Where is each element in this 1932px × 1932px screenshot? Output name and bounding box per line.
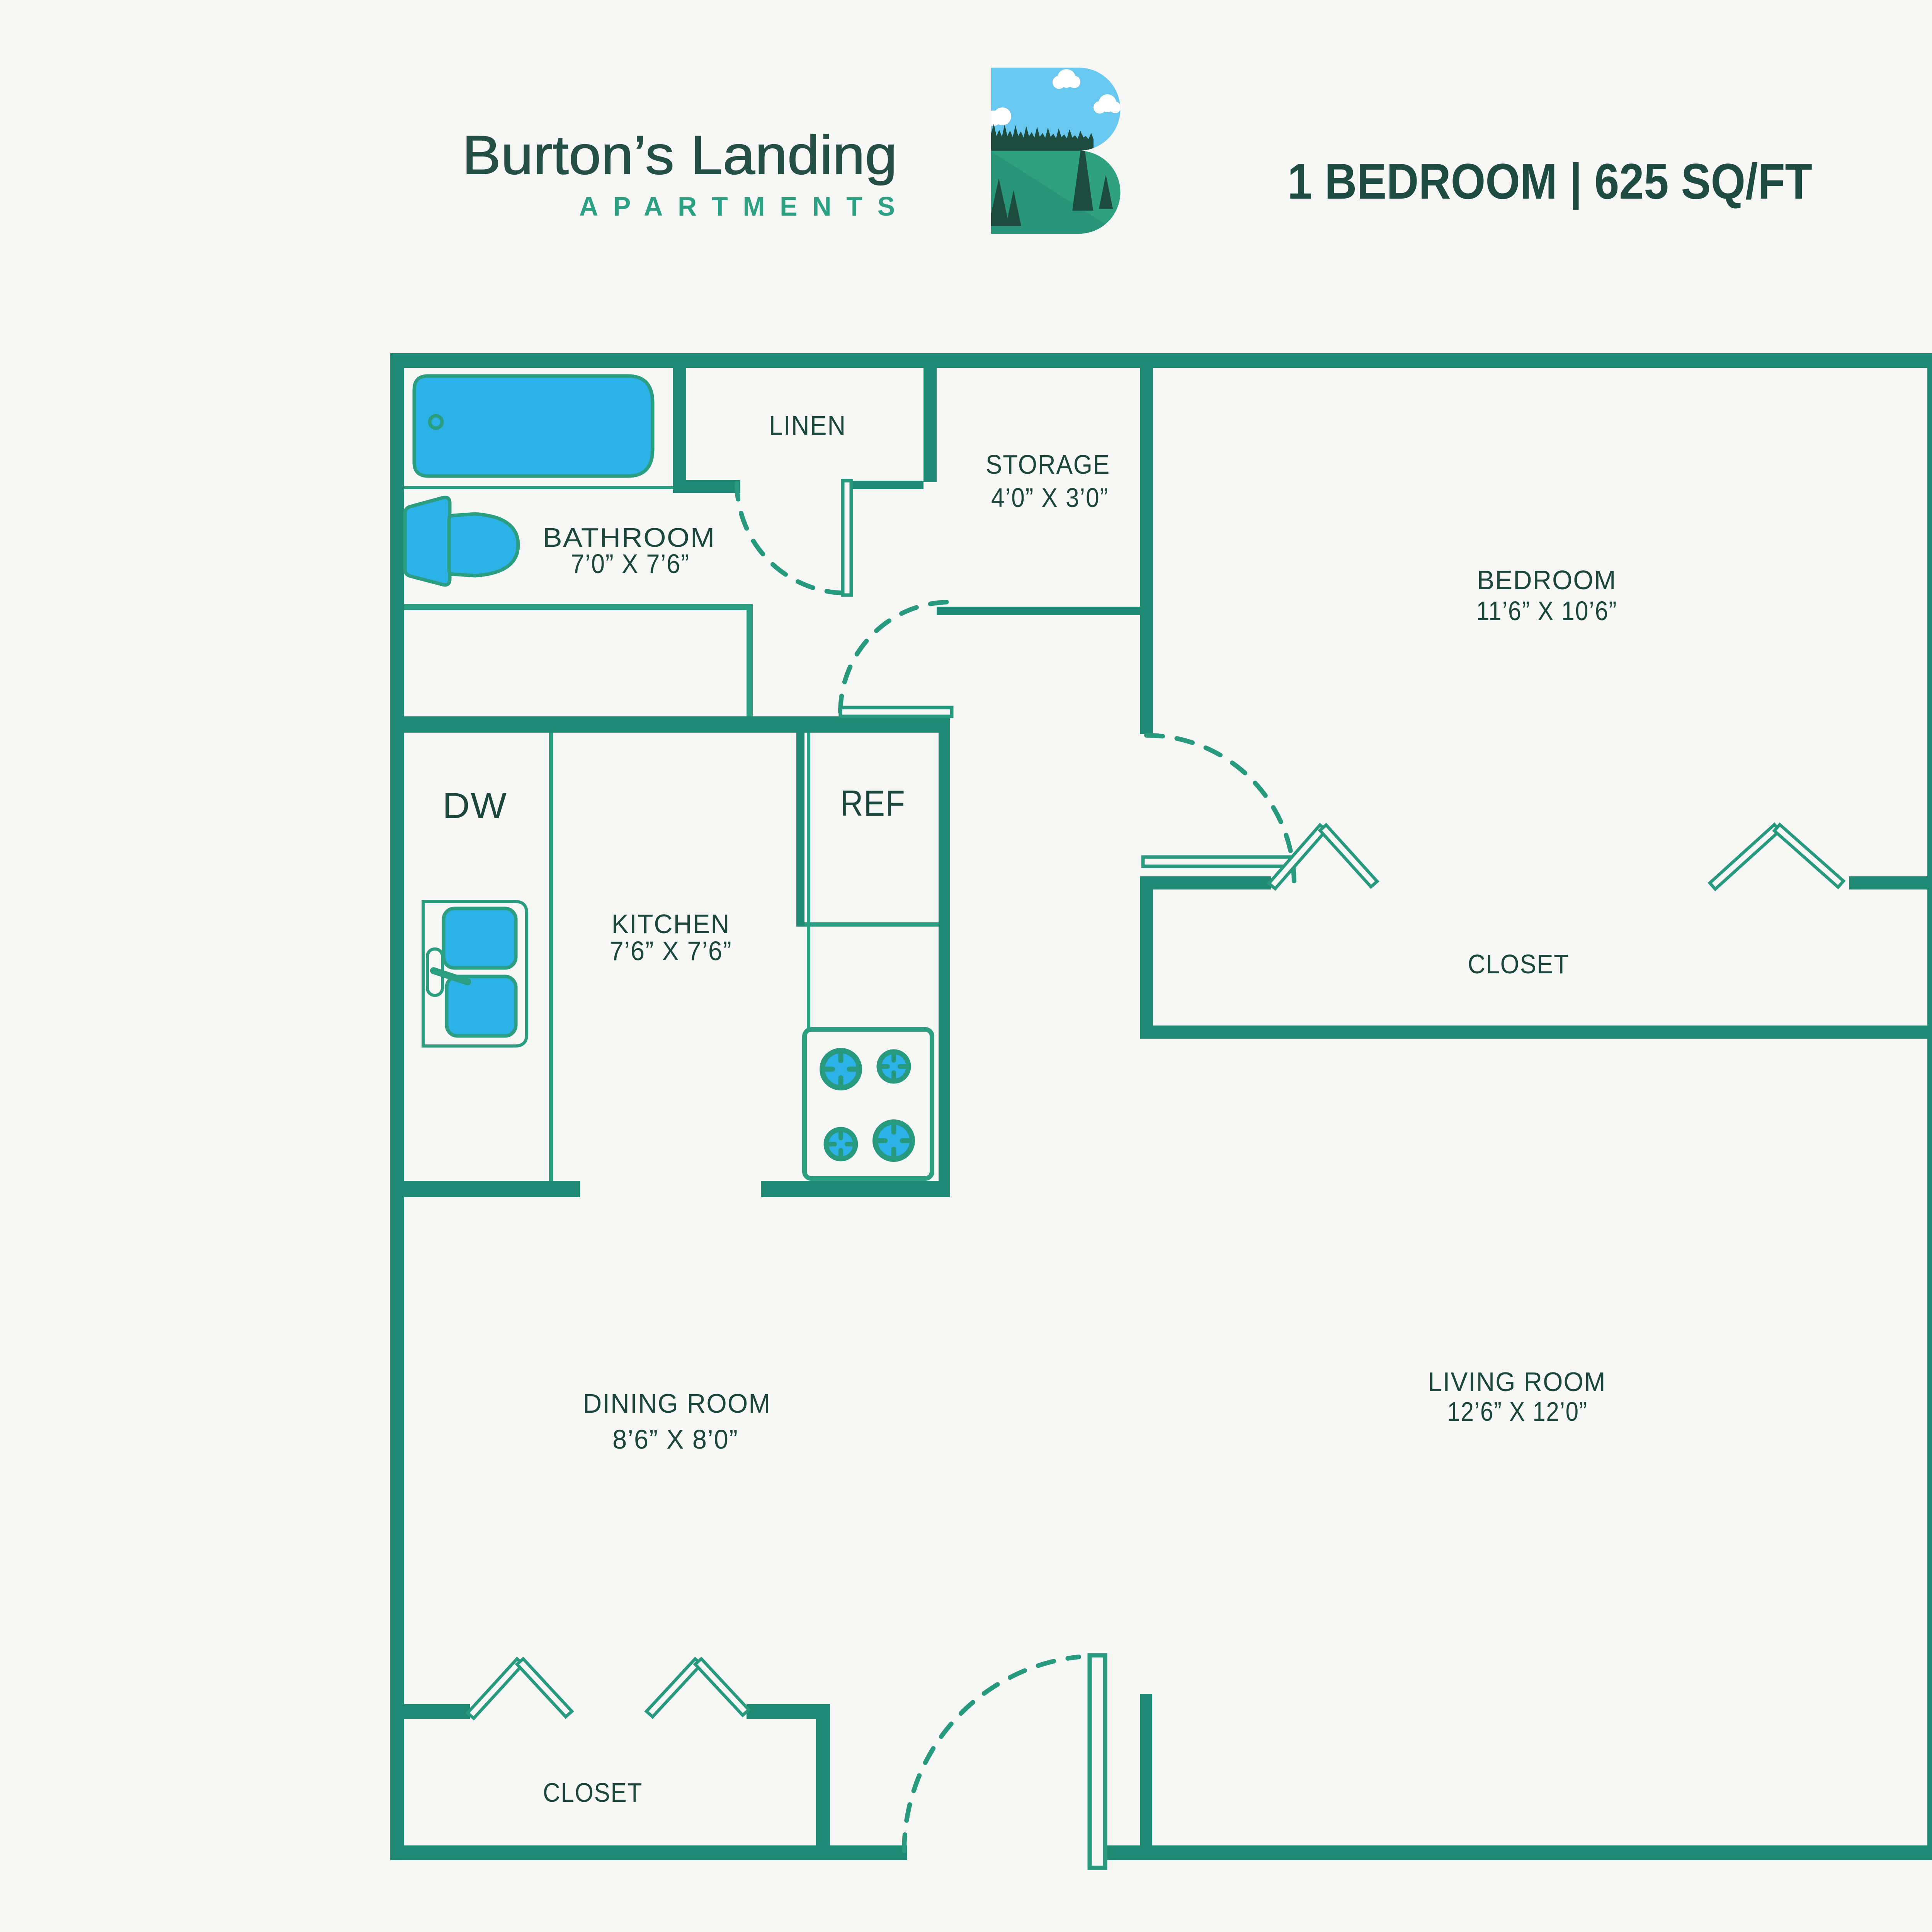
svg-text:Burton’s Landing: Burton’s Landing bbox=[462, 124, 897, 186]
svg-text:REF: REF bbox=[840, 783, 906, 823]
svg-text:DW: DW bbox=[442, 785, 507, 826]
svg-text:7’6” X 7’6”: 7’6” X 7’6” bbox=[610, 936, 732, 966]
svg-text:8’6” X 8’0”: 8’6” X 8’0” bbox=[612, 1424, 738, 1454]
svg-text:APARTMENTS: APARTMENTS bbox=[579, 191, 910, 221]
svg-text:1 BEDROOM | 625 SQ/FT: 1 BEDROOM | 625 SQ/FT bbox=[1287, 153, 1812, 210]
svg-text:11’6” X 10’6”: 11’6” X 10’6” bbox=[1476, 596, 1617, 626]
svg-text:KITCHEN: KITCHEN bbox=[612, 909, 730, 939]
svg-text:LIVING ROOM: LIVING ROOM bbox=[1428, 1367, 1606, 1397]
svg-text:CLOSET: CLOSET bbox=[1468, 949, 1570, 979]
svg-text:4’0” X 3’0”: 4’0” X 3’0” bbox=[991, 483, 1109, 513]
svg-text:BEDROOM: BEDROOM bbox=[1477, 565, 1617, 595]
svg-text:12’6” X 12’0”: 12’6” X 12’0” bbox=[1447, 1396, 1588, 1427]
svg-text:LINEN: LINEN bbox=[769, 410, 846, 440]
svg-text:STORAGE: STORAGE bbox=[986, 449, 1110, 480]
svg-text:DINING ROOM: DINING ROOM bbox=[583, 1388, 771, 1418]
svg-text:CLOSET: CLOSET bbox=[543, 1777, 643, 1808]
svg-text:7’0” X 7’6”: 7’0” X 7’6” bbox=[571, 549, 690, 579]
svg-text:BATHROOM: BATHROOM bbox=[543, 522, 716, 553]
